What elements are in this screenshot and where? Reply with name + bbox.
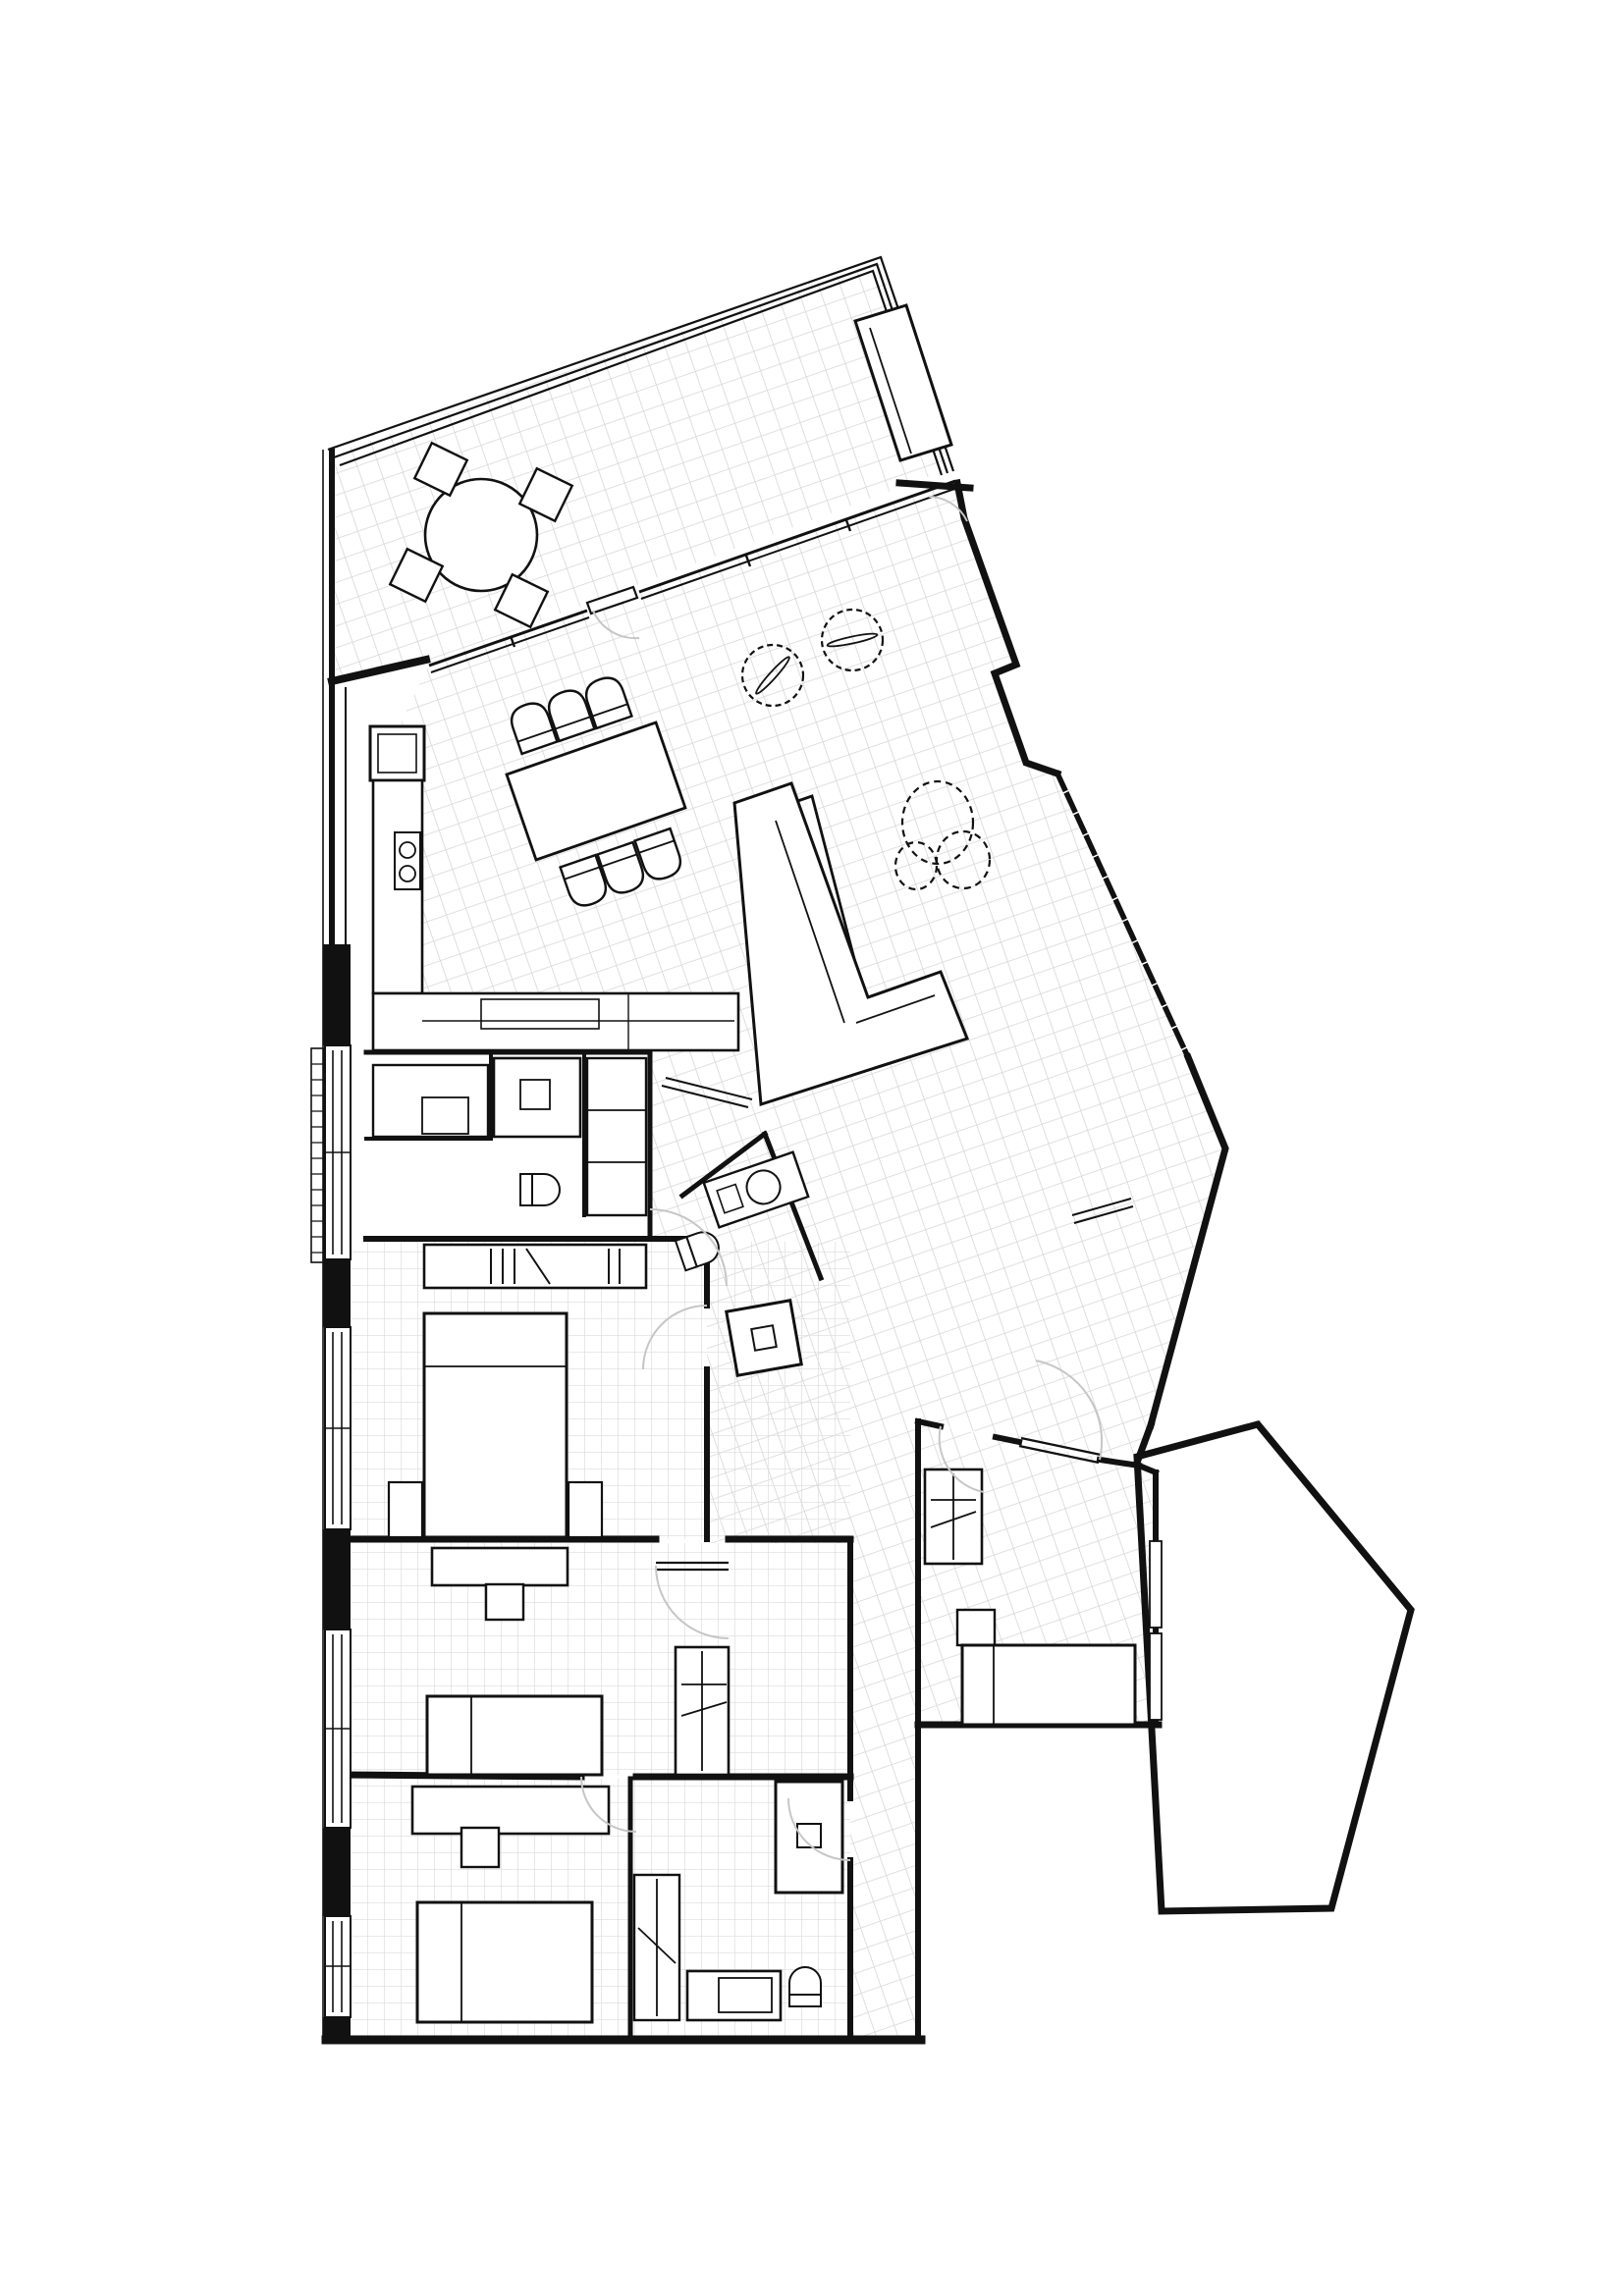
wardrobe [676,1647,729,1775]
shower-cabin [727,1301,801,1375]
wall-pier [323,1259,351,1327]
desk-chair [461,1828,499,1867]
wall-pier [323,944,351,1045]
kitchen-counter [373,780,422,993]
wardrobe [925,1469,982,1564]
double-bed [424,1313,567,1537]
facade-window [325,1629,351,1828]
wall-pier [323,1529,351,1629]
toilet [789,1967,821,2006]
left-facade [311,450,351,2044]
headboard-shelf [957,1610,995,1645]
kitchen-island [373,993,738,1050]
wall-pier [323,2017,351,2044]
bed [962,1645,1135,1725]
toilet [520,1174,560,1205]
fridge-cabinet [370,726,424,780]
tall-cabinet [634,1875,679,2020]
bed [427,1696,602,1775]
floor-plan-page [0,0,1624,2296]
terrace-round-table [425,479,537,591]
vanity-counter [687,1971,781,2020]
headboard-shelf [432,1548,568,1585]
facade-window [325,1916,351,2017]
bedroom-3 [412,1787,609,2022]
nightstand [389,1482,422,1537]
facade-window [325,1327,351,1529]
shower-tray [776,1782,842,1893]
radiator [311,1048,324,1262]
storage-column [587,1058,646,1215]
nightstand [568,1482,602,1537]
wall-pier [323,1828,351,1916]
bed [417,1902,592,2022]
open-wardrobe-rails [424,1245,646,1288]
side-table [486,1584,523,1620]
floor-plan-canvas [0,0,1624,2296]
washing-machine [494,1058,580,1137]
counter-cabinet [373,1065,488,1137]
adjacent-terrace-outline [1137,1424,1411,1911]
facade-window [325,1045,351,1259]
